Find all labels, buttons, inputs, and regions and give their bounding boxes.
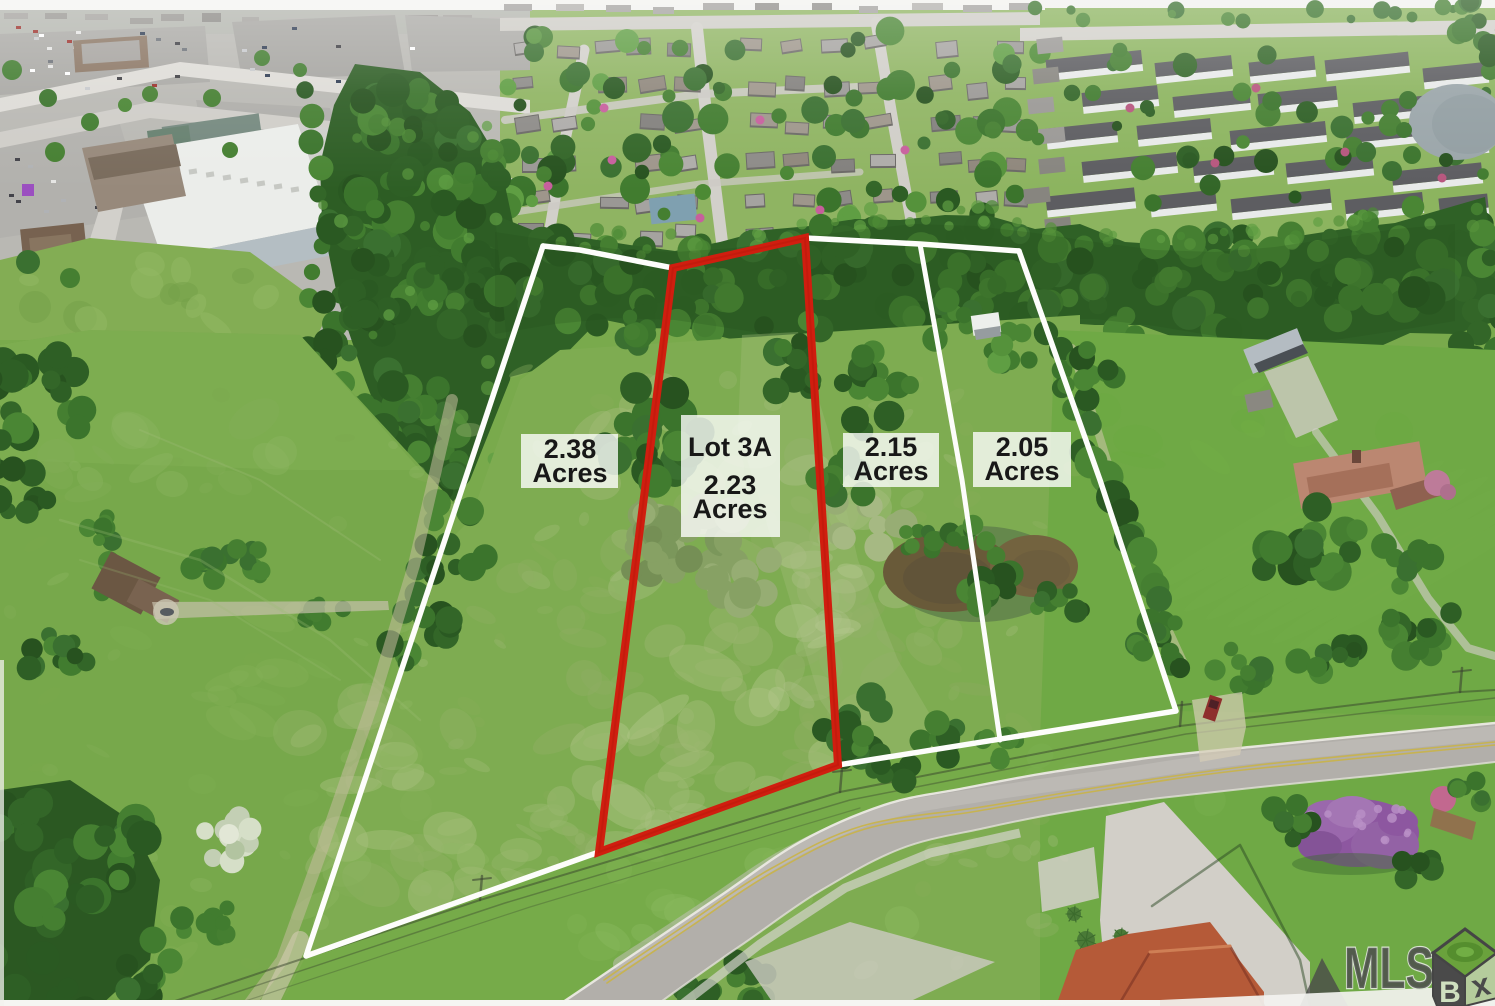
svg-text:Acres: Acres — [853, 456, 928, 486]
svg-text:MLS: MLS — [1344, 936, 1434, 1001]
svg-text:Acres: Acres — [984, 456, 1059, 486]
svg-text:Acres: Acres — [692, 494, 767, 524]
svg-text:Acres: Acres — [532, 458, 607, 488]
svg-text:Lot 3A: Lot 3A — [688, 432, 772, 462]
svg-text:B: B — [1439, 976, 1461, 1006]
